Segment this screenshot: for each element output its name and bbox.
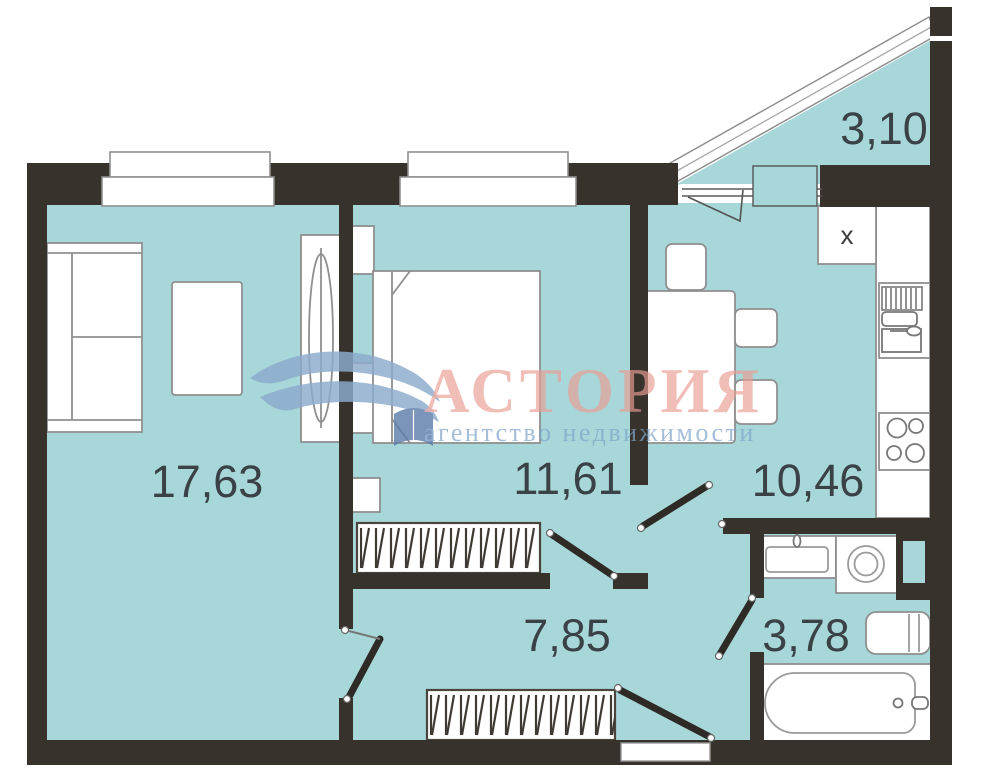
room-area-label-hall: 7,85 bbox=[523, 610, 611, 661]
hinge-dot bbox=[716, 653, 723, 660]
hinge-dot bbox=[708, 735, 715, 742]
watermark-subtitle: агентство недвижимости bbox=[424, 418, 756, 447]
wall-living-hall bbox=[339, 698, 353, 740]
window-living-inner bbox=[102, 177, 274, 206]
bathroom-sink-basin bbox=[766, 547, 828, 572]
closet-hatch-pattern bbox=[427, 690, 615, 740]
room-area-label-balcony: 3,10 bbox=[840, 103, 928, 154]
entry-threshold bbox=[621, 743, 710, 761]
coffee-table bbox=[172, 282, 242, 395]
hinge-dot bbox=[719, 521, 726, 528]
closet-hatch-pattern bbox=[357, 523, 540, 573]
cabinet-x-mark: x bbox=[841, 220, 854, 250]
room-area-label-living: 17,63 bbox=[151, 456, 264, 507]
wall-living-bedroom bbox=[339, 205, 353, 629]
wall-bedroom-hall bbox=[339, 573, 550, 589]
chair bbox=[666, 244, 706, 290]
dresser bbox=[352, 478, 380, 512]
wall-left bbox=[27, 163, 47, 743]
bathtub-drain bbox=[894, 699, 903, 708]
burner bbox=[906, 444, 924, 462]
bathtub-basin bbox=[765, 673, 915, 733]
room-area-label-kitchen: 10,46 bbox=[752, 455, 865, 506]
wall-right bbox=[930, 7, 952, 765]
hinge-dot bbox=[344, 696, 351, 703]
vent-duct-inner bbox=[903, 541, 925, 583]
floor-plan-page: x bbox=[0, 0, 988, 770]
room-area-label-bedroom: 11,61 bbox=[513, 453, 622, 504]
watermark-brand: АСТОРИЯ bbox=[424, 356, 763, 426]
wall-balcony-kitchen bbox=[820, 165, 932, 207]
hinge-dot bbox=[547, 530, 554, 537]
faucet bbox=[907, 327, 921, 336]
nightstand bbox=[350, 226, 374, 274]
floor-plan-svg: x bbox=[0, 0, 988, 770]
room-area-label-bathroom: 3,78 bbox=[762, 610, 850, 661]
sink-drainer bbox=[882, 312, 917, 326]
chair bbox=[735, 309, 777, 347]
washer-door-inner bbox=[855, 553, 878, 576]
window-bedroom-outer bbox=[408, 152, 568, 177]
hinge-dot bbox=[749, 595, 756, 602]
wall-bottom bbox=[27, 740, 952, 765]
balcony-door-open-panel bbox=[753, 166, 817, 206]
towel-rail bbox=[866, 612, 930, 654]
wall-bedroom-hall-stub bbox=[613, 573, 648, 589]
hinge-dot bbox=[342, 627, 349, 634]
wall-window-slit bbox=[930, 36, 952, 41]
hinge-dot bbox=[706, 482, 713, 489]
burner bbox=[888, 419, 907, 438]
hinge-dot bbox=[611, 573, 618, 580]
drying-rack-lines bbox=[882, 287, 922, 310]
hinge-dot bbox=[615, 685, 622, 692]
window-living-outer bbox=[110, 152, 270, 177]
wall-bathroom-left bbox=[750, 534, 764, 598]
burner bbox=[909, 419, 923, 433]
hinge-dot bbox=[638, 525, 645, 532]
burner bbox=[887, 446, 901, 460]
window-bedroom-inner bbox=[400, 177, 576, 206]
bathtub-faucet bbox=[912, 697, 928, 709]
vent-duct bbox=[896, 524, 932, 600]
wall-bathroom-left-lower bbox=[750, 652, 764, 740]
bathroom-faucet bbox=[794, 535, 801, 547]
